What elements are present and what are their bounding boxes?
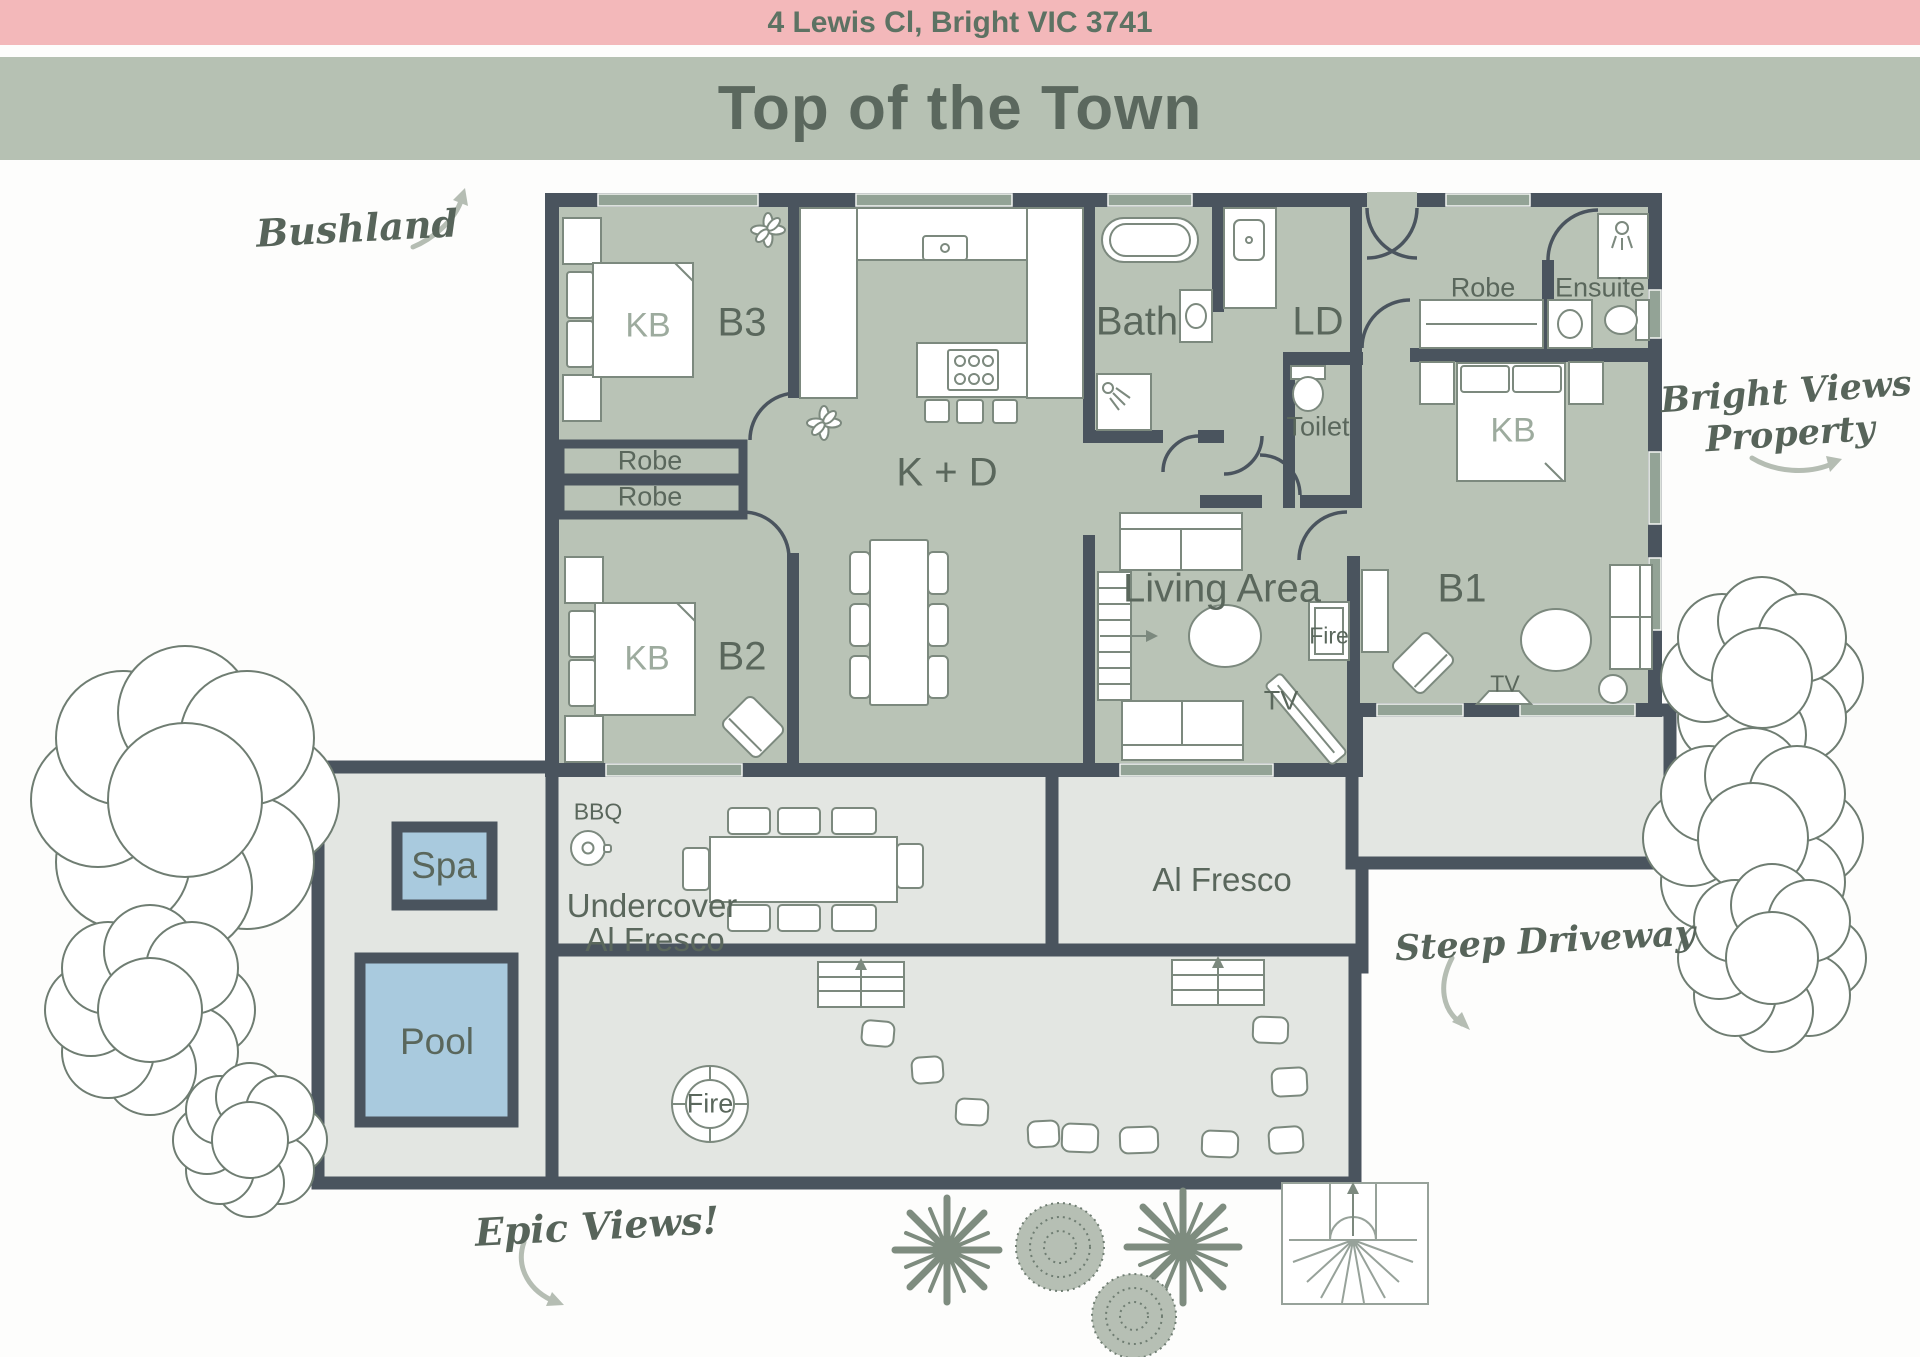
driveway	[1352, 710, 1670, 863]
dining-furniture	[850, 540, 948, 705]
pool	[360, 958, 513, 1122]
outdoor-areas	[318, 710, 1670, 1183]
spa	[397, 827, 492, 905]
fire-pit	[672, 1066, 748, 1142]
curved-staircase	[1282, 1182, 1428, 1304]
laundry-fixtures	[1224, 208, 1276, 308]
floorplan-page: 4 Lewis Cl, Bright VIC 3741 Top of the T…	[0, 0, 1920, 1357]
garden-plants	[895, 1191, 1239, 1357]
toilet-fixtures	[1291, 366, 1325, 411]
hall-robes	[560, 444, 743, 515]
floorplan-svg	[0, 0, 1920, 1357]
